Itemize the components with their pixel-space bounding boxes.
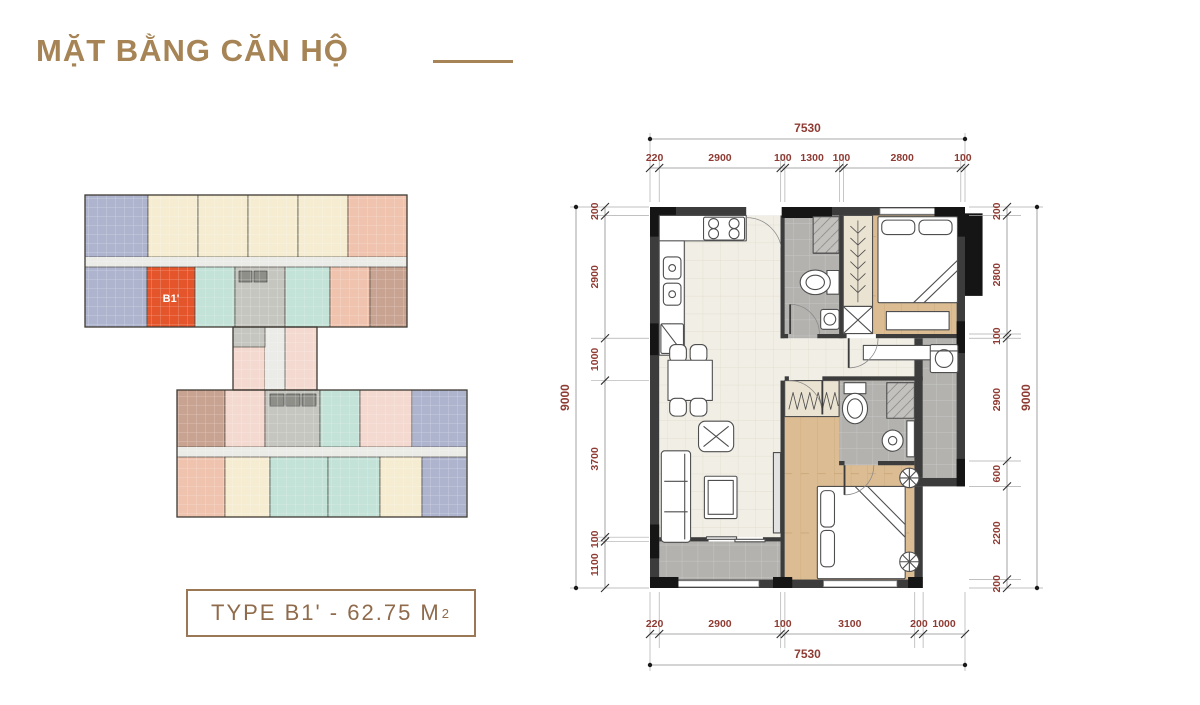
sliding-door [706,537,736,540]
dimension-label: 200 [589,202,601,220]
dimension-label: 100 [774,618,792,630]
dimension-total-label: 7530 [794,647,821,661]
ceiling-light-icon [900,552,919,571]
dimension-label: 2800 [991,263,1003,287]
dimension-label: 2900 [589,265,601,289]
dimension-chain-bottom: 2202900100310020010007530 [646,592,969,671]
pillow [821,491,835,527]
plan-drawing [650,207,983,588]
dimension-label: 1300 [800,152,824,164]
dimension-label: 100 [833,152,851,164]
dimension-label: 100 [954,152,972,164]
dimension-label: 200 [991,202,1003,220]
unit-type-sup: 2 [442,606,451,621]
basin1-icon [821,309,839,329]
pillow [821,530,835,566]
dimension-label: 2900 [708,152,732,164]
dimension-label: 2900 [708,618,732,630]
dimension-label: 2200 [991,521,1003,545]
dimension-label: 100 [589,530,601,548]
pillow [919,220,952,234]
dimension-label: 3700 [589,447,601,471]
shower2-icon [887,383,915,419]
washing-machine-icon [930,345,958,373]
dining-table [668,360,712,400]
dimension-label: 2800 [890,152,914,164]
dimension-label: 200 [991,575,1003,593]
dimension-label: 200 [910,618,928,630]
exterior-column [965,213,983,296]
basin2-icon [882,430,903,451]
dimension-label: 220 [646,618,664,630]
ceiling-light-icon [900,468,919,487]
balcony-railing [675,581,759,587]
entry-opening [746,207,782,215]
pillow [882,220,915,234]
dining-chair [670,398,687,416]
keymap-highlight-label: B1' [163,293,180,305]
bedroom1-window [880,208,939,214]
dimension-label: 3100 [838,618,862,630]
dimension-chain-left: 20029001000370010011009000 [558,202,649,592]
dimension-label: 2900 [991,388,1003,412]
building-keymap-svg: B1' [70,180,480,570]
unit-type-label: TYPE B1' - 62.75 M [211,600,441,626]
bedroom2-window [824,581,897,587]
unit-type-badge: TYPE B1' - 62.75 M2 [186,589,476,637]
coffee-table [704,476,737,518]
building-keymap: B1' [70,180,480,570]
dimension-label: 220 [646,152,664,164]
toilet2-tank [844,383,866,394]
dimension-chain-top: 2202900100130010028001007530 [646,121,972,202]
dimension-total-label: 9000 [558,384,572,411]
brochure-page: { "header": { "title": "MẶT BẰNG CĂN HỘ"… [0,0,1200,705]
dimension-label: 1000 [589,348,601,372]
wardrobe2-icon [785,381,839,417]
dimension-label: 100 [991,327,1003,345]
dining-chair [690,398,707,416]
dimension-label: 1000 [932,618,956,630]
dimension-total-label: 7530 [794,121,821,135]
dimension-label: 600 [991,465,1003,483]
page-title: MẶT BẰNG CĂN HỘ [36,33,349,69]
tv-console [773,453,780,533]
sliding-door [735,539,765,542]
dresser1 [886,312,949,330]
unit-floor-plan: 2202900100130010028001007530220290010031… [555,110,1055,690]
dimension-label: 1100 [589,553,601,576]
bath2-cabinet [907,421,915,457]
dimension-label: 100 [774,152,792,164]
sofa-icon [661,451,690,542]
shower1-icon [813,217,839,253]
toilet2-icon [842,393,867,423]
title-accent-line [433,60,513,63]
balcony-floor [659,541,780,579]
dimension-total-label: 9000 [1019,384,1033,411]
unit-floor-plan-svg: 2202900100130010028001007530220290010031… [555,110,1055,690]
toilet1-icon [800,270,830,295]
